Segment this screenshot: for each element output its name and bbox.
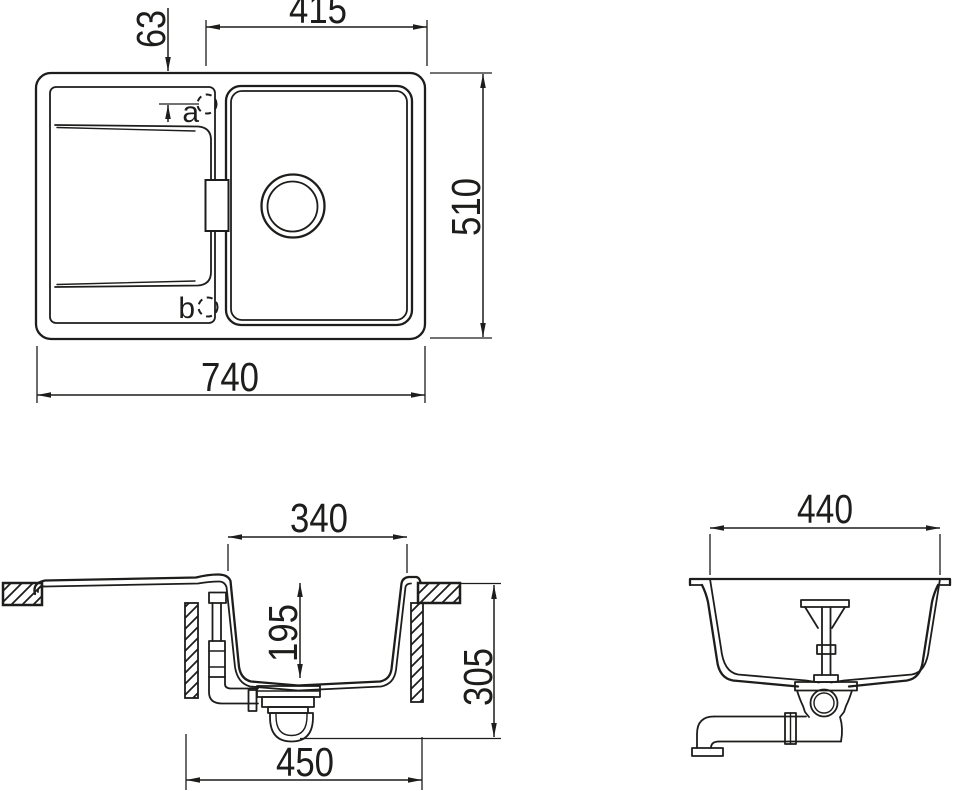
dim-415-label: 415	[289, 0, 347, 32]
cabinet-panel-left	[185, 603, 198, 698]
countertop-right-section	[418, 583, 460, 603]
technical-drawing: a b 415 63 510 740	[0, 0, 960, 791]
dim-510-label: 510	[443, 178, 489, 236]
dim-195-label: 195	[260, 604, 306, 662]
dim-340-label: 340	[290, 495, 348, 541]
hole-b-label: b	[178, 292, 195, 325]
dim-63-label: 63	[128, 10, 174, 48]
hole-a-label: a	[182, 96, 199, 129]
cabinet-panel-right	[411, 603, 423, 702]
dim-450-label: 450	[276, 739, 334, 785]
dim-440-label: 440	[797, 486, 853, 532]
drawing-page: a b 415 63 510 740	[0, 0, 960, 791]
dim-740-label: 740	[201, 354, 259, 400]
dim-305-label: 305	[455, 648, 501, 706]
divider-clip	[206, 180, 229, 231]
